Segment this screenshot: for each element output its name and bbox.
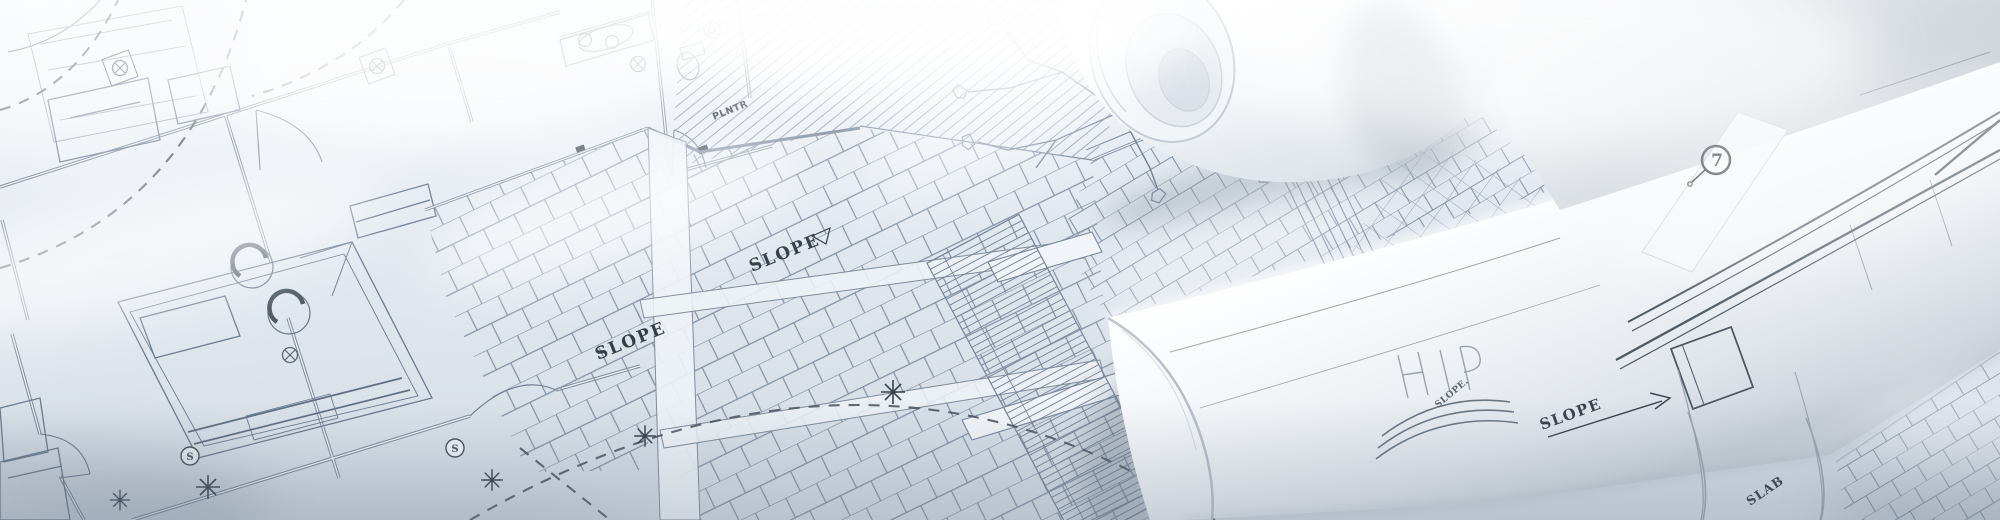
shadow-overlays	[0, 400, 2000, 520]
blueprint-photograph: S S SLOPE SLOPE PLNTR	[0, 0, 2000, 520]
